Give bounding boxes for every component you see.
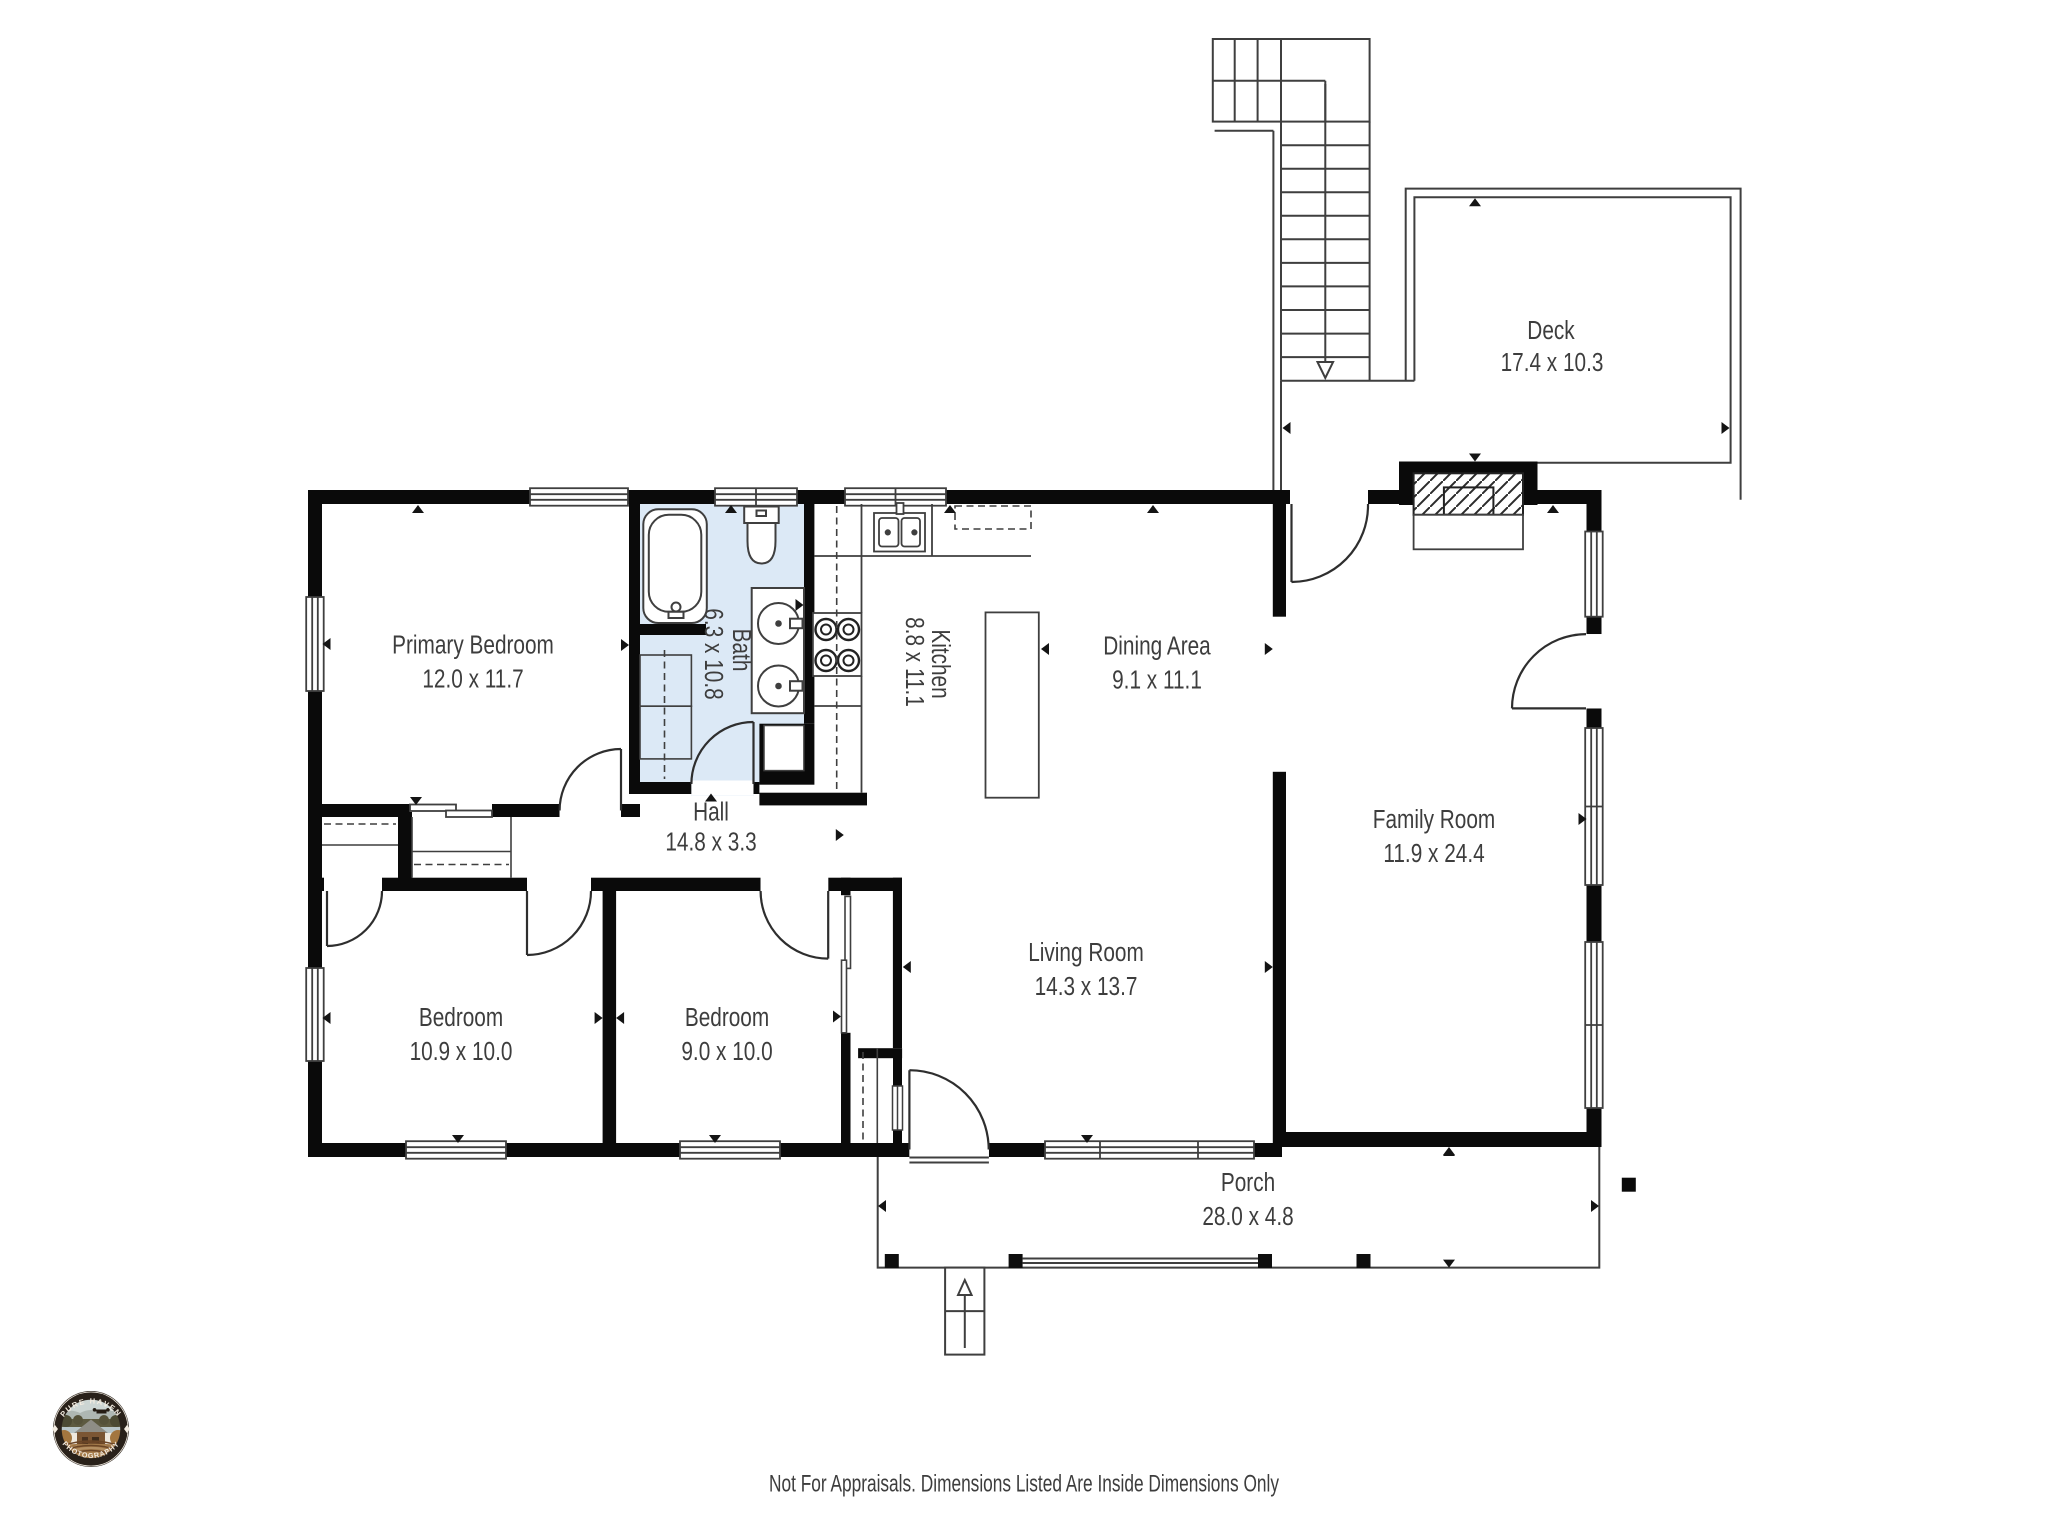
svg-text:Porch: Porch [1221, 1168, 1275, 1197]
svg-text:14.8 x 3.3: 14.8 x 3.3 [665, 827, 756, 856]
svg-text:17.4 x 10.3: 17.4 x 10.3 [1501, 348, 1604, 377]
svg-text:Dining Area: Dining Area [1103, 631, 1211, 660]
svg-text:Family Room: Family Room [1373, 805, 1495, 834]
svg-text:11.9 x 24.4: 11.9 x 24.4 [1383, 839, 1484, 868]
svg-text:28.0 x 4.8: 28.0 x 4.8 [1202, 1202, 1293, 1231]
svg-text:10.9 x 10.0: 10.9 x 10.0 [410, 1037, 513, 1066]
svg-text:Bedroom: Bedroom [685, 1003, 769, 1032]
svg-text:8.8 x 11.1: 8.8 x 11.1 [900, 617, 929, 707]
svg-text:Primary Bedroom: Primary Bedroom [392, 630, 554, 659]
svg-text:Living Room: Living Room [1028, 938, 1144, 967]
svg-text:Not For Appraisals. Dimensions: Not For Appraisals. Dimensions Listed Ar… [769, 1471, 1279, 1498]
svg-text:Bedroom: Bedroom [419, 1003, 503, 1032]
svg-text:9.1 x 11.1: 9.1 x 11.1 [1112, 665, 1202, 694]
svg-text:Kitchen: Kitchen [926, 629, 955, 698]
svg-text:12.0 x 11.7: 12.0 x 11.7 [422, 664, 523, 693]
svg-text:6.3 x 10.8: 6.3 x 10.8 [699, 608, 728, 699]
svg-text:Deck: Deck [1527, 316, 1575, 345]
svg-text:14.3 x 13.7: 14.3 x 13.7 [1035, 972, 1138, 1001]
svg-text:Bath: Bath [727, 629, 756, 672]
svg-text:9.0 x 10.0: 9.0 x 10.0 [681, 1037, 772, 1066]
svg-text:Hall: Hall [693, 797, 729, 826]
